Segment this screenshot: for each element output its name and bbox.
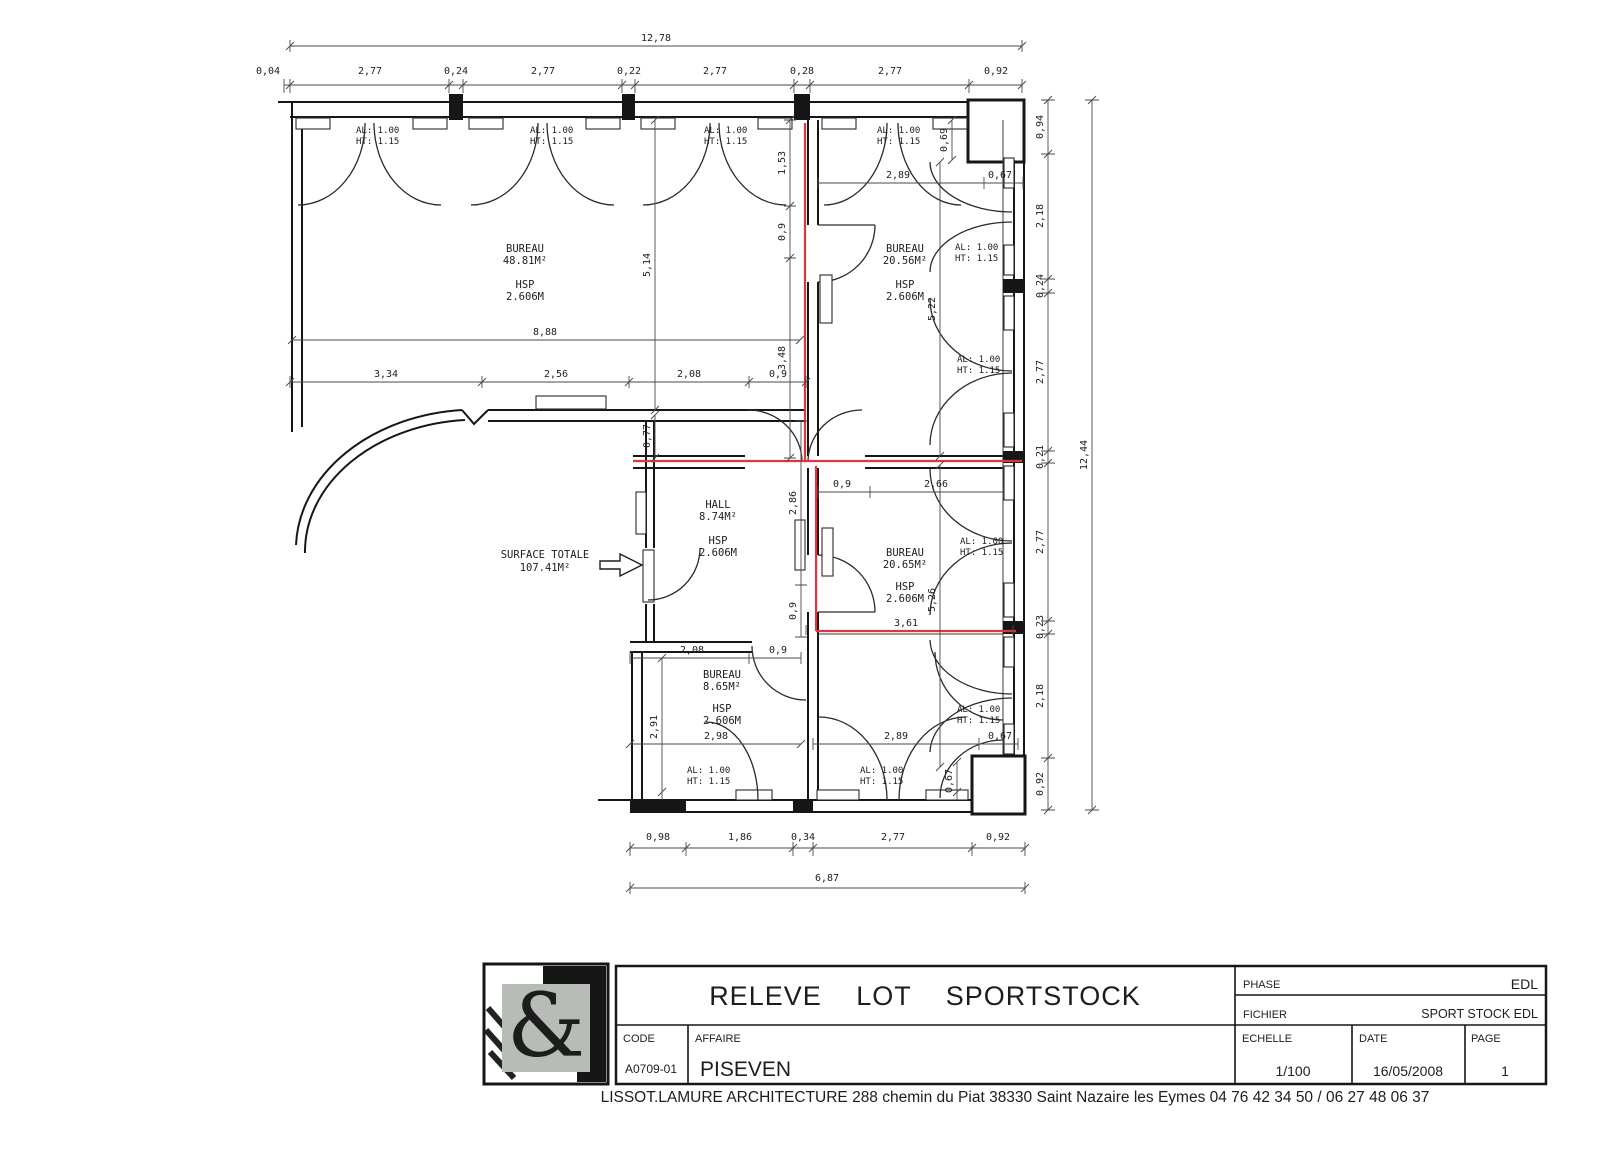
room-area: 8.74M²: [699, 511, 737, 523]
dim-label: 0,67: [988, 731, 1012, 742]
room-hsp-value: 2.606M: [886, 593, 924, 605]
dim-label: 2,89: [884, 731, 908, 742]
window-label-al: AL: 1.00: [955, 243, 998, 253]
dim-label: 0,34: [791, 832, 815, 843]
dim-label: 0,04: [256, 66, 280, 77]
dim-label: 2,77: [881, 832, 905, 843]
architect-footer: LISSOT.LAMURE ARCHITECTURE 288 chemin du…: [601, 1089, 1430, 1106]
dim-label: 0,23: [1035, 615, 1046, 639]
dim-label: 0,22: [617, 66, 641, 77]
echelle-label: ECHELLE: [1242, 1033, 1292, 1045]
date-value: 16/05/2008: [1373, 1063, 1443, 1079]
window-label-ht: HT: 1.15: [957, 716, 1000, 726]
window-label-al: AL: 1.00: [957, 705, 1000, 715]
dim-label: 2,56: [544, 369, 568, 380]
logo: &: [484, 964, 608, 1084]
dim-label: 6,87: [815, 873, 839, 884]
room-name: BUREAU: [886, 547, 924, 559]
dim-label: 2,08: [677, 369, 701, 380]
floor-plan-svg: 12,78 0,04 2,77 0,24 2,77 0,22 2,77 0,28…: [0, 0, 1600, 1155]
room-area: 8.65M²: [703, 681, 741, 693]
radiators: [536, 275, 833, 576]
affaire-label: AFFAIRE: [695, 1033, 741, 1045]
dim-label: 0,28: [790, 66, 814, 77]
dim-label: 12,44: [1079, 440, 1090, 470]
arrow-right-icon: [600, 554, 642, 576]
dim-label: 0,9: [777, 223, 788, 241]
dim-label: 3,34: [374, 369, 398, 380]
dim-label: 5,14: [642, 253, 653, 277]
dim-label: 2,18: [1035, 204, 1046, 228]
window-label-ht: HT: 1.15: [704, 137, 747, 147]
fichier-value: SPORT STOCK EDL: [1421, 1007, 1538, 1021]
dim-label: 0,67: [944, 769, 955, 793]
window-label-al: AL: 1.00: [860, 766, 903, 776]
dim-label: 2,77: [1035, 530, 1046, 554]
dim-label: 2,98: [704, 731, 728, 742]
page-label: PAGE: [1471, 1033, 1501, 1045]
surface-value: 107.41M²: [520, 562, 571, 574]
room-hsp-value: 2.606M: [699, 547, 737, 559]
phase-value: EDL: [1511, 976, 1538, 992]
room-name: BUREAU: [886, 243, 924, 255]
surface-note: SURFACE TOTALE 107.41M²: [501, 549, 642, 576]
room-area: 20.65M²: [883, 559, 927, 571]
title-block: & RELEVE LOT SPORTSTOCK PHASE EDL FICHIE…: [484, 964, 1546, 1084]
dim-label: 2,66: [924, 479, 948, 490]
dim-label: 0,67: [988, 170, 1012, 181]
window-label-ht: HT: 1.15: [877, 137, 920, 147]
corner-pillar-ne: [968, 100, 1024, 162]
window-label-ht: HT: 1.15: [955, 254, 998, 264]
room-name: BUREAU: [703, 669, 741, 681]
room-hsp-value: 2.606M: [886, 291, 924, 303]
logo-ampersand: &: [507, 974, 585, 1077]
window-label-al: AL: 1.00: [877, 126, 920, 136]
room-hsp-label: HSP: [896, 279, 915, 291]
dim-label: 2,77: [531, 66, 555, 77]
window-label-al: AL: 1.00: [704, 126, 747, 136]
window-label-ht: HT: 1.15: [356, 137, 399, 147]
dim-label: 2,18: [1035, 684, 1046, 708]
room-name: BUREAU: [506, 243, 544, 255]
fichier-label: FICHIER: [1243, 1009, 1287, 1021]
dim-label: 2,77: [878, 66, 902, 77]
room-labels: BUREAU 48.81M² HSP 2.606M BUREAU 20.56M²…: [503, 243, 927, 727]
affaire-value: PISEVEN: [700, 1058, 791, 1081]
dim-label: 2,77: [703, 66, 727, 77]
dim-label: 3,48: [777, 346, 788, 370]
dim-label: 5,22: [927, 297, 938, 321]
dim-label: 2,08: [680, 645, 704, 656]
window-label-ht: HT: 1.15: [860, 777, 903, 787]
window-label-al: AL: 1.00: [687, 766, 730, 776]
room-hsp-label: HSP: [713, 703, 732, 715]
corner-pillar-se: [972, 756, 1025, 814]
dim-label: 0,92: [986, 832, 1010, 843]
window-label-ht: HT: 1.15: [687, 777, 730, 787]
page-value: 1: [1501, 1063, 1509, 1079]
dim-label: 0,9: [788, 602, 799, 620]
room-hsp-label: HSP: [709, 535, 728, 547]
dim-label: 2,91: [649, 715, 660, 739]
window-label-ht: HT: 1.15: [960, 548, 1003, 558]
dim-label: 0,94: [1035, 115, 1046, 139]
dim-label: 1,53: [777, 151, 788, 175]
window-label-al: AL: 1.00: [957, 355, 1000, 365]
code-value: A0709-01: [625, 1062, 677, 1076]
dim-label: 0,9: [833, 479, 851, 490]
surface-label: SURFACE TOTALE: [501, 549, 590, 561]
window-label-al: AL: 1.00: [356, 126, 399, 136]
dim-label: 2,77: [1035, 360, 1046, 384]
echelle-value: 1/100: [1275, 1063, 1310, 1079]
room-hsp-value: 2.606M: [703, 715, 741, 727]
room-hsp-label: HSP: [896, 581, 915, 593]
dim-label: 3,61: [894, 618, 918, 629]
room-hsp-value: 2.606M: [506, 291, 544, 303]
dim-label: 0,9: [769, 645, 787, 656]
window-label-al: AL: 1.00: [530, 126, 573, 136]
room-area: 20.56M²: [883, 255, 927, 267]
dim-label: 0,69: [939, 128, 950, 152]
dim-label: 0,98: [646, 832, 670, 843]
window-label-al: AL: 1.00: [960, 537, 1003, 547]
dim-label: 1,86: [728, 832, 752, 843]
room-area: 48.81M²: [503, 255, 547, 267]
phase-label: PHASE: [1243, 979, 1280, 991]
drawing-title: RELEVE LOT SPORTSTOCK: [709, 981, 1141, 1011]
dim-label: 2,89: [886, 170, 910, 181]
window-label-ht: HT: 1.15: [957, 366, 1000, 376]
dim-label: 0,92: [984, 66, 1008, 77]
date-label: DATE: [1359, 1033, 1388, 1045]
drawing-sheet: 12,78 0,04 2,77 0,24 2,77 0,22 2,77 0,28…: [0, 0, 1600, 1155]
dim-label: 12,78: [641, 33, 671, 44]
dim-label: 8,88: [533, 327, 557, 338]
code-label: CODE: [623, 1033, 655, 1045]
dim-label: 0,21: [1035, 445, 1046, 469]
room-hsp-label: HSP: [516, 279, 535, 291]
dim-label: 0,24: [444, 66, 468, 77]
walls: [278, 94, 1025, 814]
dim-label: 5,26: [927, 588, 938, 612]
dim-label: 0,92: [1035, 772, 1046, 796]
dim-label: 2,77: [358, 66, 382, 77]
dim-label: 2,86: [788, 491, 799, 515]
dim-label: 0,77: [642, 424, 653, 448]
window-label-ht: HT: 1.15: [530, 137, 573, 147]
room-name: HALL: [705, 499, 730, 511]
dim-label: 0,24: [1035, 274, 1046, 298]
